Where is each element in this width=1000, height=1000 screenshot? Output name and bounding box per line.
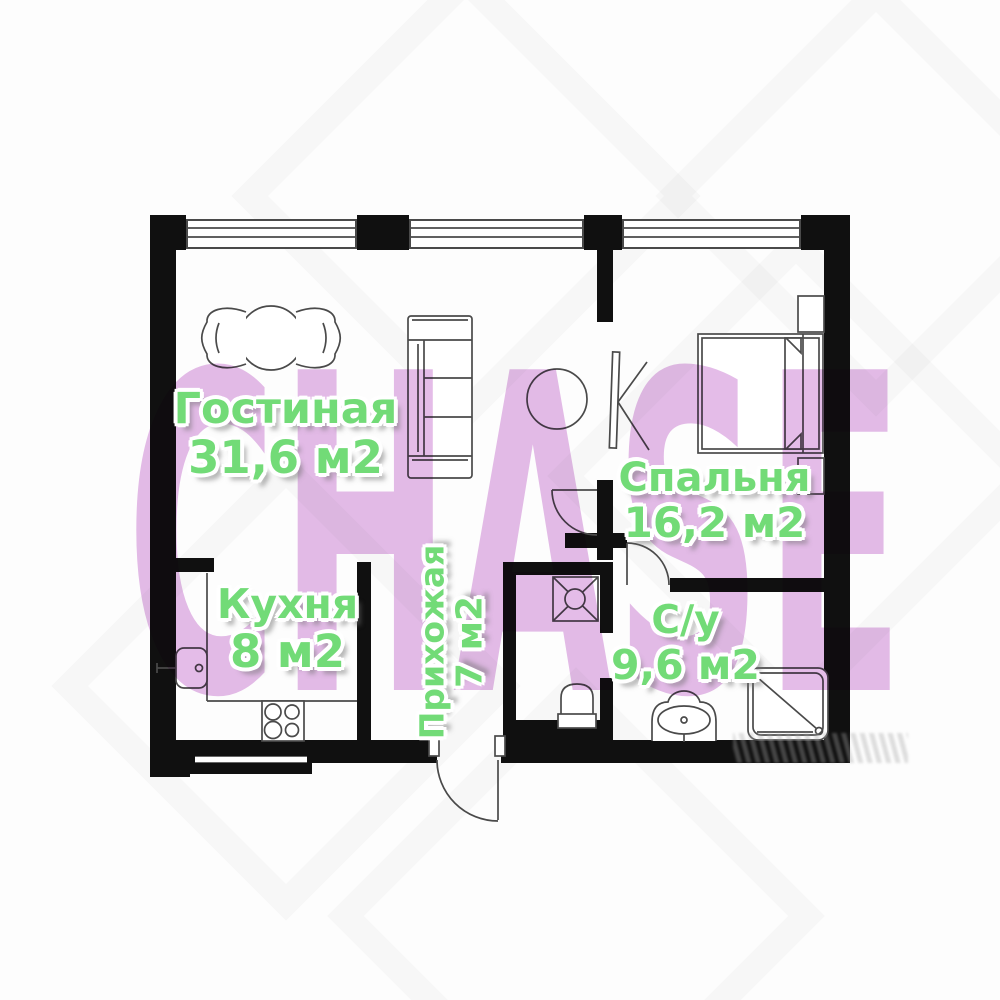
floor-plan-canvas: CHASE Гостиная 31,6 м2 Спальня 16,2 м2 К… bbox=[0, 0, 1000, 1000]
room-name: С/у bbox=[608, 600, 763, 643]
window-living-1 bbox=[186, 219, 357, 249]
room-label-kitchen: Кухня 8 м2 bbox=[175, 582, 400, 677]
room-name: Кухня bbox=[175, 582, 400, 627]
room-label-living: Гостиная 31,6 м2 bbox=[148, 386, 423, 483]
room-area: 8 м2 bbox=[175, 627, 400, 677]
corner-watermark-smudge bbox=[733, 733, 908, 763]
room-name: Гостиная bbox=[148, 386, 423, 433]
wall-top-pillar-2 bbox=[584, 215, 622, 250]
room-name: Спальня bbox=[592, 456, 837, 500]
room-label-bedroom: Спальня 16,2 м2 bbox=[592, 456, 837, 546]
room-area: 9,6 м2 bbox=[608, 643, 763, 688]
room-area: 31,6 м2 bbox=[148, 433, 423, 483]
room-area: 7 м2 bbox=[450, 545, 490, 740]
room-label-hallway: Прихожая 7 м2 bbox=[368, 557, 536, 727]
window-living-2 bbox=[409, 219, 584, 249]
room-area: 16,2 м2 bbox=[592, 500, 837, 546]
window-bedroom bbox=[622, 219, 801, 249]
wall-top-pillar-1 bbox=[357, 215, 409, 250]
room-name: Прихожая bbox=[414, 545, 450, 740]
room-label-bathroom: С/у 9,6 м2 bbox=[608, 600, 763, 688]
